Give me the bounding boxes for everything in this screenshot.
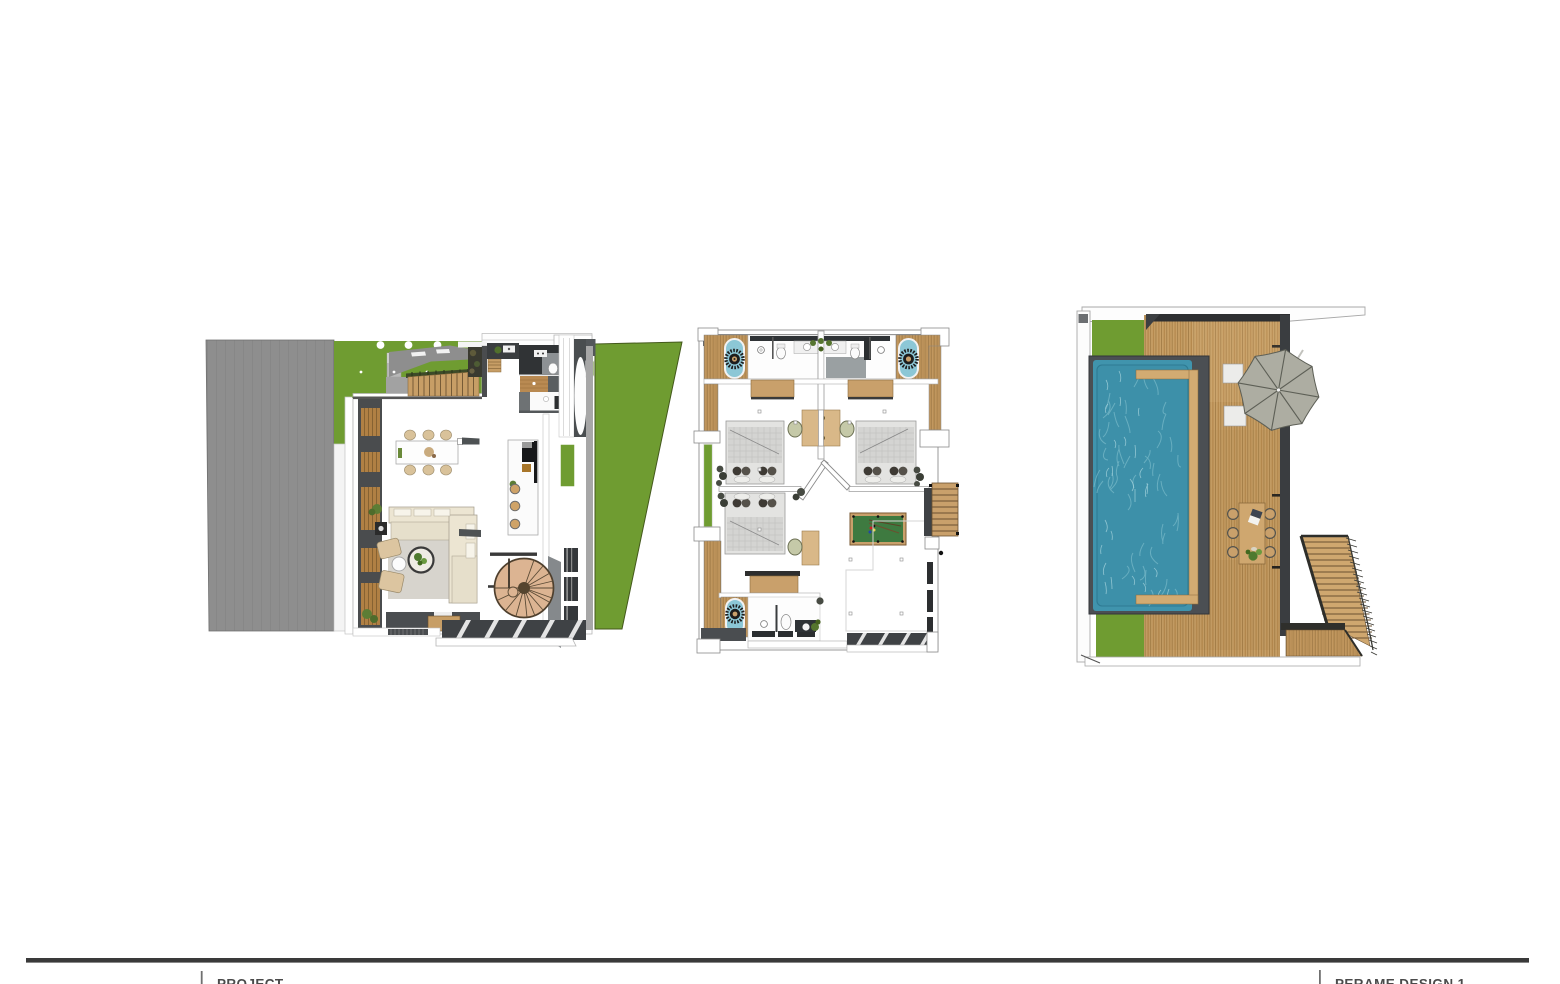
svg-text:PERAME DESIGN 1: PERAME DESIGN 1 bbox=[1335, 977, 1466, 984]
svg-text:PROJECT: PROJECT bbox=[217, 977, 284, 984]
